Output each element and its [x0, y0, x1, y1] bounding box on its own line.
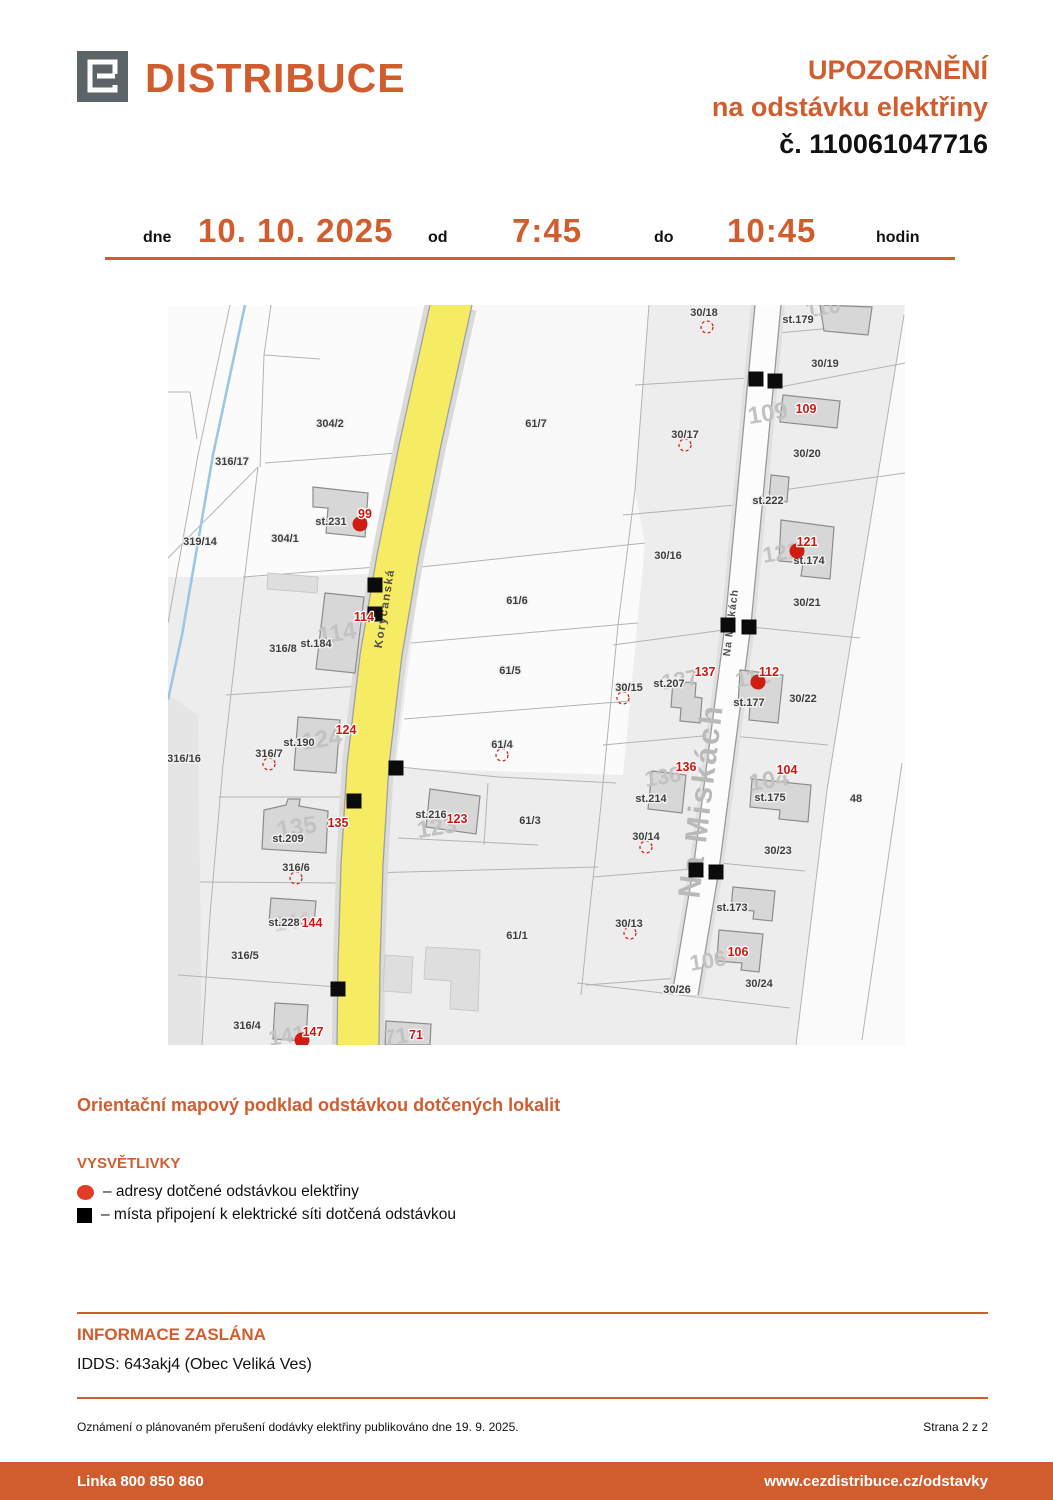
- footer-phone: Linka 800 850 860: [77, 1473, 204, 1490]
- parcel-label: st.173: [716, 902, 747, 914]
- parcel-label: st.175: [754, 792, 785, 804]
- parcel-label: 61/3: [519, 815, 540, 827]
- notice-header: UPOZORNĚNÍ na odstávku elektřiny č. 1100…: [712, 52, 988, 163]
- parcel-label: 30/20: [793, 448, 821, 460]
- legend-item-connections: – místa připojení k elektrické síti dotč…: [77, 1206, 456, 1224]
- parcel-label: st.228: [268, 917, 299, 929]
- outage-date: 10. 10. 2025: [198, 212, 394, 250]
- schedule-divider: [105, 257, 955, 260]
- legend-item-text: – adresy dotčené odstávkou elektřiny: [103, 1183, 359, 1201]
- parcel-label: 316/8: [269, 643, 297, 655]
- parcel-label: 30/14: [632, 831, 660, 843]
- parcel-label: 304/2: [316, 418, 344, 430]
- info-divider-bottom: [77, 1397, 988, 1399]
- info-sent-title: INFORMACE ZASLÁNA: [77, 1325, 266, 1345]
- parcel-label: 319/14: [183, 536, 218, 548]
- parcel-label: 30/15: [615, 682, 643, 694]
- parcel-label: 61/4: [491, 739, 513, 751]
- parcel-label: 30/22: [789, 693, 817, 705]
- parcel-label: st.179: [782, 314, 813, 326]
- address-number-label: 104: [777, 763, 798, 777]
- connection-point-marker: [389, 761, 404, 776]
- parcel-label: st.177: [733, 697, 764, 709]
- address-number-label: 147: [303, 1025, 324, 1039]
- label-od: od: [428, 229, 448, 247]
- parcel-label: st.190: [283, 737, 314, 749]
- address-number-label: 114: [354, 610, 374, 624]
- building-number: 71: [382, 1022, 410, 1045]
- connection-point-marker: [689, 863, 704, 878]
- parcel-label: 316/5: [231, 950, 259, 962]
- map-title: Orientační mapový podklad odstávkou dotč…: [77, 1095, 560, 1116]
- cez-logo: [77, 51, 128, 102]
- notice-line1: UPOZORNĚNÍ: [712, 52, 988, 89]
- parcel-label: 30/18: [690, 307, 718, 319]
- parcel-label: st.216: [415, 809, 446, 821]
- parcel-label: 61/5: [499, 665, 520, 677]
- info-idds: IDDS: 643akj4 (Obec Veliká Ves): [77, 1356, 312, 1374]
- address-number-label: 112: [759, 665, 779, 679]
- parcel-label: 316/17: [215, 456, 249, 468]
- address-number-label: 136: [676, 760, 697, 774]
- time-to: 10:45: [727, 212, 816, 250]
- footer-url[interactable]: www.cezdistribuce.cz/odstavky: [764, 1473, 988, 1490]
- notice-number: č. 110061047716: [712, 126, 988, 163]
- notice-line2: na odstávku elektřiny: [712, 89, 988, 126]
- parcel-label: 316/6: [282, 862, 310, 874]
- parcel-label: 61/1: [506, 930, 527, 942]
- address-number-label: 137: [695, 665, 716, 679]
- parcel-label: 304/1: [271, 533, 299, 545]
- label-do: do: [654, 229, 674, 247]
- parcel-label: 30/21: [793, 597, 821, 609]
- parcel-label: 316/7: [255, 748, 283, 760]
- parcel-label: 316/4: [233, 1020, 261, 1032]
- info-divider-top: [77, 1312, 988, 1314]
- parcel-label: 61/6: [506, 595, 527, 607]
- parcel-label: st.184: [300, 638, 332, 650]
- address-number-label: 99: [358, 507, 372, 521]
- parcel-label: 30/19: [811, 358, 839, 370]
- connection-point-marker: [749, 372, 764, 387]
- address-number-label: 71: [409, 1028, 423, 1042]
- outage-map: 1141241351441091231361041061121371211101…: [168, 305, 905, 1045]
- parcel-label: 30/16: [654, 550, 682, 562]
- connection-point-marker: [721, 618, 736, 633]
- cez-logo-icon: [77, 51, 128, 102]
- address-number-label: 124: [336, 723, 357, 737]
- parcel-label: st.231: [315, 516, 346, 528]
- publication-note: Oznámení o plánovaném přerušení dodávky …: [77, 1420, 519, 1434]
- label-hodin: hodin: [876, 229, 920, 247]
- address-number-label: 109: [796, 402, 817, 416]
- page-number: Strana 2 z 2: [923, 1420, 988, 1434]
- connection-point-marker: [742, 620, 757, 635]
- parcel-label: 30/17: [671, 429, 699, 441]
- connection-point-marker: [768, 374, 783, 389]
- parcel-label: 48: [850, 793, 862, 805]
- address-number-label: 121: [797, 535, 818, 549]
- black-square-icon: [77, 1208, 92, 1223]
- footer-bar: Linka 800 850 860 www.cezdistribuce.cz/o…: [0, 1462, 1053, 1500]
- parcel-label: 30/26: [663, 984, 691, 996]
- connection-point-marker: [368, 578, 383, 593]
- address-number-label: 135: [328, 816, 349, 830]
- legend-item-text: – místa připojení k elektrické síti dotč…: [101, 1206, 456, 1224]
- parcel-label: 30/13: [615, 918, 643, 930]
- connection-point-marker: [347, 794, 362, 809]
- address-number-label: 144: [302, 916, 323, 930]
- red-dot-icon: [77, 1185, 94, 1200]
- time-from: 7:45: [512, 212, 582, 250]
- label-dne: dne: [143, 229, 171, 247]
- legend-item-addresses: – adresy dotčené odstávkou elektřiny: [77, 1183, 359, 1201]
- parcel-label: st.207: [653, 678, 684, 690]
- legend-title: VYSVĚTLIVKY: [77, 1155, 180, 1172]
- parcel-label: 61/7: [525, 418, 546, 430]
- outage-notice-page: DISTRIBUCE UPOZORNĚNÍ na odstávku elektř…: [0, 0, 1053, 1500]
- parcel-label: st.214: [635, 793, 667, 805]
- parcel-label: 30/23: [764, 845, 792, 857]
- parcel-label: st.222: [752, 495, 783, 507]
- parcel-label: 316/16: [168, 753, 201, 765]
- parcel-label: 30/24: [745, 978, 773, 990]
- connection-point-marker: [709, 865, 724, 880]
- brand-name: DISTRIBUCE: [145, 55, 406, 102]
- address-number-label: 123: [447, 812, 468, 826]
- connection-point-marker: [331, 982, 346, 997]
- address-number-label: 106: [728, 945, 749, 959]
- parcel-label: st.209: [272, 833, 303, 845]
